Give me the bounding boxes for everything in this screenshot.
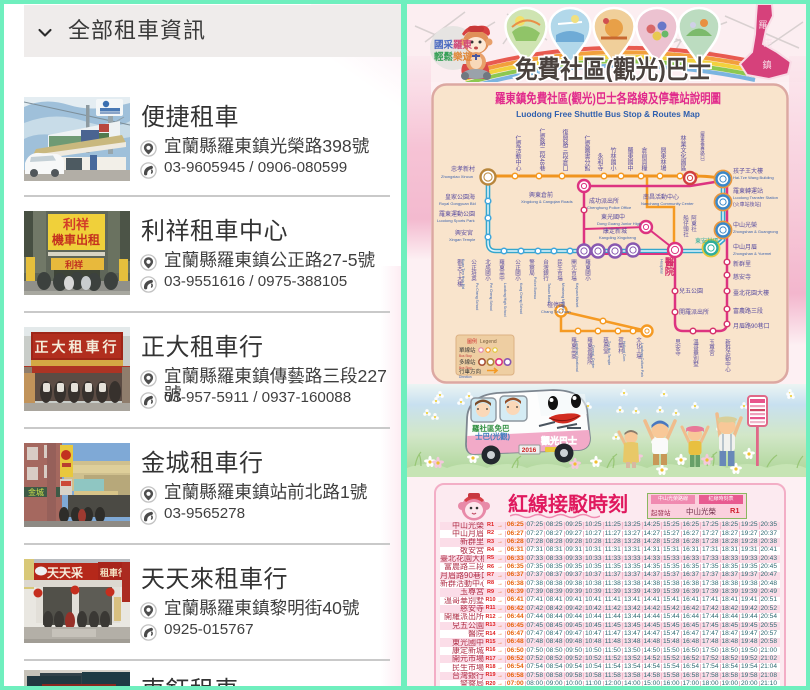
svg-text:Direction: Direction xyxy=(459,375,472,379)
svg-text:警察局: 警察局 xyxy=(528,258,535,277)
svg-text:Chenghung Police Office: Chenghung Police Office xyxy=(587,205,632,210)
svg-text:興東倉前: 興東倉前 xyxy=(529,191,553,199)
svg-text:船仔頭社: 船仔頭社 xyxy=(682,214,689,239)
svg-text:Minsheng Market: Minsheng Market xyxy=(561,283,565,310)
svg-text:多線站: 多線站 xyxy=(459,358,476,366)
svg-text:林業文化園區: 林業文化園區 xyxy=(679,134,686,171)
svg-text:Xingdong & Cangqian Roads: Xingdong & Cangqian Roads xyxy=(521,199,573,204)
svg-text:免費社區(觀光)巴士: 免費社區(觀光)巴士 xyxy=(515,55,711,82)
svg-text:民生市場: 民生市場 xyxy=(556,259,563,283)
svg-text:圖例: 圖例 xyxy=(467,338,477,345)
svg-text:Luodong Sports Park: Luodong Sports Park xyxy=(437,218,475,223)
svg-text:玉尊宮: 玉尊宮 xyxy=(708,339,715,357)
svg-text:Zhongxiao Xincun: Zhongxiao Xincun xyxy=(441,174,473,179)
svg-text:皇家公園海: 皇家公園海 xyxy=(445,193,475,201)
svg-text:開元市場: 開元市場 xyxy=(570,259,577,283)
svg-text:鎮: 鎮 xyxy=(762,59,771,70)
svg-text:倉前資糧: 倉前資糧 xyxy=(640,146,647,172)
svg-text:Pu Cheng School: Pu Cheng School xyxy=(475,283,479,310)
svg-text:Police Bureau: Police Bureau xyxy=(533,277,537,299)
svg-text:輕鬆: 輕鬆 xyxy=(434,51,454,63)
svg-text:士巴(光觀): 士巴(光觀) xyxy=(475,431,510,441)
svg-text:羅東國中: 羅東國中 xyxy=(626,147,633,172)
svg-text:慈安寺: 慈安寺 xyxy=(733,273,751,281)
svg-text:新群里: 新群里 xyxy=(733,260,751,268)
svg-text:復興路三段倉口: 復興路三段倉口 xyxy=(561,128,568,172)
svg-text:阿東社: 阿東社 xyxy=(690,214,697,233)
svg-text:金城: 金城 xyxy=(28,487,44,497)
svg-text:Legend: Legend xyxy=(480,339,497,345)
svg-text:利祥: 利祥 xyxy=(64,259,83,270)
svg-text:思安寺: 思安寺 xyxy=(674,339,681,356)
svg-text:開羅派出所: 開羅派出所 xyxy=(679,308,709,316)
svg-text:Luodong Culture Park: Luodong Culture Park xyxy=(640,343,644,377)
svg-text:Kangding Xingcheng: Kangding Xingcheng xyxy=(599,235,636,240)
svg-text:成功派出所: 成功派出所 xyxy=(589,197,619,205)
svg-text:Royal Gongyuan Bld: Royal Gongyuan Bld xyxy=(439,201,476,206)
svg-text:羅: 羅 xyxy=(758,20,767,30)
svg-text:樂遊: 樂遊 xyxy=(452,51,473,63)
svg-text:Zhongshan & Guangrong: Zhongshan & Guangrong xyxy=(733,229,778,234)
svg-text:(火車站後站): (火車站後站) xyxy=(733,201,762,208)
svg-text:東光國中: 東光國中 xyxy=(601,213,625,221)
svg-text:天天采: 天天采 xyxy=(47,565,83,580)
svg-text:公正培英: 公正培英 xyxy=(470,259,477,282)
svg-text:Hospital: Hospital xyxy=(660,259,665,274)
svg-text:單線站: 單線站 xyxy=(459,346,476,354)
svg-text:兒五公園: 兒五公園 xyxy=(679,287,703,295)
svg-text:羅東高中: 羅東高中 xyxy=(498,259,505,283)
svg-text:北成國小: 北成國小 xyxy=(484,258,491,283)
svg-text:Pei Cheng School: Pei Cheng School xyxy=(489,283,493,311)
svg-text:Luodong Free Shuttle Bus Stop: Luodong Free Shuttle Bus Stop & Routes M… xyxy=(516,109,700,119)
svg-text:Conval. Center: Conval. Center xyxy=(591,345,595,369)
svg-text:Luodong Transfer Station: Luodong Transfer Station xyxy=(733,195,778,200)
svg-text:竹林國小: 竹林國小 xyxy=(609,146,616,172)
svg-text:仁愛圖書分館: 仁愛圖書分館 xyxy=(583,134,590,172)
svg-text:Hai-Tze Wang Building: Hai-Tze Wang Building xyxy=(733,175,774,180)
svg-text:Luodong High School: Luodong High School xyxy=(503,283,507,317)
svg-text:Bus Stop: Bus Stop xyxy=(459,354,472,358)
svg-text:Dong Guang Junior High: Dong Guang Junior High xyxy=(597,221,641,226)
svg-text:Tzu Hui Temple: Tzu Hui Temple xyxy=(607,341,611,365)
svg-text:Kuan Tien Hsia Bld: Kuan Tien Hsia Bld xyxy=(461,259,465,289)
svg-text:孩子王大樓: 孩子王大樓 xyxy=(733,167,763,175)
svg-text:中山光榮: 中山光榮 xyxy=(733,221,757,229)
svg-text:富農路三段: 富農路三段 xyxy=(733,307,763,315)
svg-text:東: 東 xyxy=(763,37,772,48)
svg-text:台灣銀行: 台灣銀行 xyxy=(542,258,549,283)
svg-text:觀光巴士: 觀光巴士 xyxy=(541,435,577,446)
svg-text:Taiwan Bank: Taiwan Bank xyxy=(547,283,551,303)
svg-text:2016: 2016 xyxy=(522,447,537,454)
svg-text:溫哥華別墅: 溫哥華別墅 xyxy=(692,338,699,367)
svg-text:興東林場: 興東林場 xyxy=(659,146,666,172)
svg-text:東安社區: 東安社區 xyxy=(695,237,719,245)
svg-text:臺北花園大樓: 臺北花園大樓 xyxy=(733,289,769,297)
svg-text:機車出租: 機車出租 xyxy=(52,232,100,247)
svg-text:新群活動中心: 新群活動中心 xyxy=(724,338,731,373)
svg-text:仁愛活動中心: 仁愛活動中心 xyxy=(514,134,521,171)
svg-text:Chang Tzu Yuan: Chang Tzu Yuan xyxy=(541,309,571,314)
svg-text:羅東運動公園: 羅東運動公園 xyxy=(439,210,475,218)
svg-text:Kung Cheng School: Kung Cheng School xyxy=(519,283,523,314)
svg-text:羅東: 羅東 xyxy=(453,39,473,51)
svg-text:興安宮: 興安宮 xyxy=(455,229,473,237)
svg-text:忠孝新村: 忠孝新村 xyxy=(451,165,475,173)
svg-text:(羅東養專路口): (羅東養專路口) xyxy=(700,131,706,161)
svg-text:Luodong Vocational: Luodong Vocational xyxy=(575,341,579,372)
svg-text:公正國小: 公正國小 xyxy=(514,259,521,282)
svg-text:羅東國小: 羅東國小 xyxy=(584,259,591,283)
svg-text:Holland Com: Holland Com xyxy=(622,341,626,361)
svg-text:國采: 國采 xyxy=(434,39,454,51)
svg-text:永和寺: 永和寺 xyxy=(596,152,603,171)
svg-text:Nanchang Community Center: Nanchang Community Center xyxy=(641,201,694,206)
svg-text:月眉路90巷口: 月眉路90巷口 xyxy=(733,322,770,330)
svg-text:康定新城: 康定新城 xyxy=(603,227,627,235)
svg-text:中山月眉: 中山月眉 xyxy=(733,243,757,251)
svg-text:Zhongshan & Yuemei: Zhongshan & Yuemei xyxy=(733,251,771,256)
svg-text:南昌活動中心: 南昌活動中心 xyxy=(643,193,679,201)
svg-text:正大租車行: 正大租車行 xyxy=(35,339,120,355)
svg-text:仁愛路二段48巷: 仁愛路二段48巷 xyxy=(538,128,545,172)
svg-text:Xingan Temple: Xingan Temple xyxy=(449,237,476,242)
svg-text:利祥: 利祥 xyxy=(63,217,89,232)
svg-text:Kaiyuan Market: Kaiyuan Market xyxy=(575,283,579,307)
svg-text:羅東鎮免費社區(觀光)巴士各路線及停靠站說明圖: 羅東鎮免費社區(觀光)巴士各路線及停靠站說明圖 xyxy=(495,91,721,106)
svg-text:羅東轉運站: 羅東轉運站 xyxy=(733,187,763,195)
